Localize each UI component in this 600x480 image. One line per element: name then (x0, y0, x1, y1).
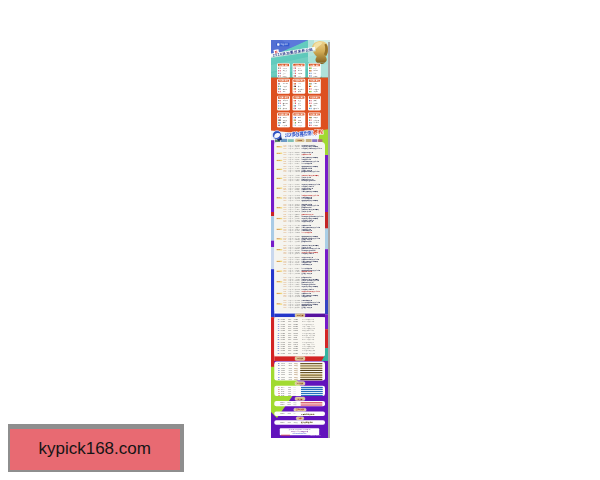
svg-text:14:00: 14:00 (283, 219, 286, 220)
svg-text:14:00: 14:00 (283, 296, 286, 297)
svg-text:08:00: 08:00 (288, 350, 291, 351)
svg-text:05:00: 05:00 (283, 200, 286, 201)
svg-text:15:00: 15:00 (283, 221, 286, 222)
svg-text:13:00: 13:00 (283, 191, 286, 192)
svg-text:09:00: 09:00 (283, 285, 286, 286)
svg-text:03:00: 03:00 (287, 422, 290, 423)
svg-text:B1vsC2: B1vsC2 (293, 348, 297, 349)
svg-text:09:00: 09:00 (288, 334, 291, 335)
svg-text:08:00: 08:00 (283, 232, 286, 233)
svg-text:13:00: 13:00 (283, 269, 286, 270)
svg-text:10:00: 10:00 (283, 237, 286, 238)
svg-text:02:00: 02:00 (288, 374, 291, 375)
svg-text:10:00: 10:00 (283, 210, 286, 211)
svg-text:08:00: 08:00 (283, 283, 286, 284)
svg-text:05:00: 05:00 (283, 303, 286, 304)
svg-text:03:00: 03:00 (288, 376, 291, 377)
svg-text:E1vsF2: E1vsF2 (293, 328, 297, 329)
svg-text:C1vsD2: C1vsD2 (293, 323, 298, 324)
svg-text:13:00: 13:00 (283, 217, 286, 218)
svg-text:10:00: 10:00 (283, 289, 286, 290)
svg-text:02:00: 02:00 (288, 337, 291, 338)
svg-text:10:00: 10:00 (283, 159, 286, 160)
svg-text:15:00: 15:00 (283, 248, 286, 249)
svg-text:K1vsL2: K1vsL2 (293, 341, 297, 342)
svg-text:05:00: 05:00 (283, 146, 286, 147)
svg-text:06:00: 06:00 (283, 305, 286, 306)
svg-text:J1vsK2: J1vsK2 (293, 339, 297, 340)
svg-text:09:00: 09:00 (283, 235, 286, 236)
svg-text:07:00: 07:00 (283, 178, 286, 179)
svg-text:03:00: 03:00 (288, 367, 291, 368)
svg-text:06:00: 06:00 (283, 148, 286, 149)
svg-text:08:00: 08:00 (283, 207, 286, 208)
svg-text:12:00: 12:00 (283, 216, 286, 217)
svg-text:04:00: 04:00 (288, 323, 291, 324)
svg-text:07:00: 07:00 (288, 330, 291, 331)
svg-text:02:00: 02:00 (288, 319, 291, 320)
svg-text:15:00: 15:00 (283, 273, 286, 274)
svg-text:100: 100 (277, 392, 279, 393)
svg-text:12:00: 12:00 (283, 241, 286, 242)
svg-text:06:00: 06:00 (288, 328, 291, 329)
svg-text:14:00: 14:00 (283, 168, 286, 169)
svg-text:07:00: 07:00 (283, 306, 286, 307)
svg-text:01:00: 01:00 (288, 363, 291, 364)
svg-text:04:00: 04:00 (283, 301, 286, 302)
svg-text:06:00: 06:00 (283, 253, 286, 254)
svg-text:04:00: 04:00 (283, 225, 286, 226)
svg-text:05:00: 05:00 (283, 278, 286, 279)
svg-text:04:00: 04:00 (283, 276, 286, 277)
svg-text:07:00: 07:00 (283, 151, 286, 152)
svg-text:I1vsJ2: I1vsJ2 (293, 337, 297, 338)
svg-text:12:00: 12:00 (283, 162, 286, 163)
svg-text:08:00: 08:00 (288, 332, 291, 333)
svg-text:06:00: 06:00 (283, 280, 286, 281)
svg-text:D1vsE2: D1vsE2 (293, 325, 297, 326)
svg-text:08:00: 08:00 (283, 258, 286, 259)
svg-text:10:00: 10:00 (283, 262, 286, 263)
svg-text:C1vsD2: C1vsD2 (293, 350, 298, 351)
svg-text:12:00: 12:00 (283, 189, 286, 190)
svg-text:12:00: 12:00 (283, 292, 286, 293)
svg-text:04:00: 04:00 (283, 198, 286, 199)
svg-text:F1vsG2: F1vsG2 (293, 330, 297, 331)
svg-text:15:00: 15:00 (283, 300, 286, 301)
svg-text:09:00: 09:00 (283, 157, 286, 158)
svg-text:07:00: 07:00 (283, 205, 286, 206)
svg-text:15:00: 15:00 (283, 196, 286, 197)
svg-text:04:00: 04:00 (283, 144, 286, 145)
svg-text:04:00: 04:00 (288, 390, 291, 391)
svg-text:07:00: 07:00 (283, 282, 286, 283)
svg-text:04:00: 04:00 (288, 378, 291, 379)
svg-text:H1vsI2: H1vsI2 (293, 334, 297, 335)
svg-text:03:00: 03:00 (287, 402, 290, 403)
svg-text:05:00: 05:00 (283, 175, 286, 176)
svg-text:10:00: 10:00 (283, 185, 286, 186)
svg-text:02:00: 02:00 (288, 365, 291, 366)
svg-text:06:00: 06:00 (283, 203, 286, 204)
svg-text:04:00: 04:00 (288, 369, 291, 370)
svg-text:11:00: 11:00 (283, 239, 286, 240)
svg-text:赛程: 赛程 (311, 128, 324, 135)
svg-text:01:00: 01:00 (288, 372, 291, 373)
svg-text:14:00: 14:00 (283, 271, 286, 272)
svg-text:09:00: 09:00 (283, 184, 286, 185)
svg-text:07:00: 07:00 (283, 230, 286, 231)
svg-text:03:00: 03:00 (288, 388, 291, 389)
svg-text:04:00: 04:00 (283, 171, 286, 172)
svg-text:08:00: 08:00 (283, 180, 286, 181)
svg-text:D1vsE2: D1vsE2 (293, 352, 297, 353)
svg-text:G1vsH2: G1vsH2 (293, 332, 298, 333)
svg-text:02:00: 02:00 (288, 386, 291, 387)
svg-text:11:00: 11:00 (283, 264, 286, 265)
svg-text:B1vsC2: B1vsC2 (293, 321, 297, 322)
svg-text:101: 101 (277, 394, 279, 395)
svg-text:13:00: 13:00 (283, 294, 286, 295)
svg-text:08:00: 08:00 (283, 153, 286, 154)
svg-text:06:00: 06:00 (283, 176, 286, 177)
svg-text:05:00: 05:00 (283, 226, 286, 227)
svg-text:06:00: 06:00 (288, 345, 291, 346)
svg-text:11:00: 11:00 (283, 214, 286, 215)
svg-text:02:00: 02:00 (288, 392, 291, 393)
svg-text:03:00: 03:00 (287, 413, 290, 414)
svg-text:05:00: 05:00 (288, 343, 291, 344)
svg-text:11:00: 11:00 (283, 291, 286, 292)
svg-text:04:00: 04:00 (288, 341, 291, 342)
svg-text:03:00: 03:00 (287, 404, 290, 405)
svg-text:07:00: 07:00 (283, 257, 286, 258)
svg-text:06:00: 06:00 (283, 228, 286, 229)
svg-text:13:00: 13:00 (283, 166, 286, 167)
svg-text:05:00: 05:00 (288, 325, 291, 326)
svg-text:14:00: 14:00 (283, 194, 286, 195)
svg-text:14:00: 14:00 (283, 246, 286, 247)
svg-text:11:00: 11:00 (283, 187, 286, 188)
svg-text:03:00: 03:00 (288, 394, 291, 395)
svg-text:13:00: 13:00 (283, 244, 286, 245)
svg-text:09:00: 09:00 (283, 260, 286, 261)
svg-text:05:00: 05:00 (283, 251, 286, 252)
svg-text:07:00: 07:00 (288, 348, 291, 349)
svg-text:12:00: 12:00 (283, 267, 286, 268)
svg-text:03:00: 03:00 (288, 339, 291, 340)
svg-text:15:00: 15:00 (283, 169, 286, 170)
svg-text:09:00: 09:00 (283, 209, 286, 210)
svg-text:11:00: 11:00 (283, 160, 286, 161)
svg-text:03:00: 03:00 (288, 321, 291, 322)
svg-text:09:00: 09:00 (288, 352, 291, 353)
svg-text:04:00: 04:00 (283, 250, 286, 251)
